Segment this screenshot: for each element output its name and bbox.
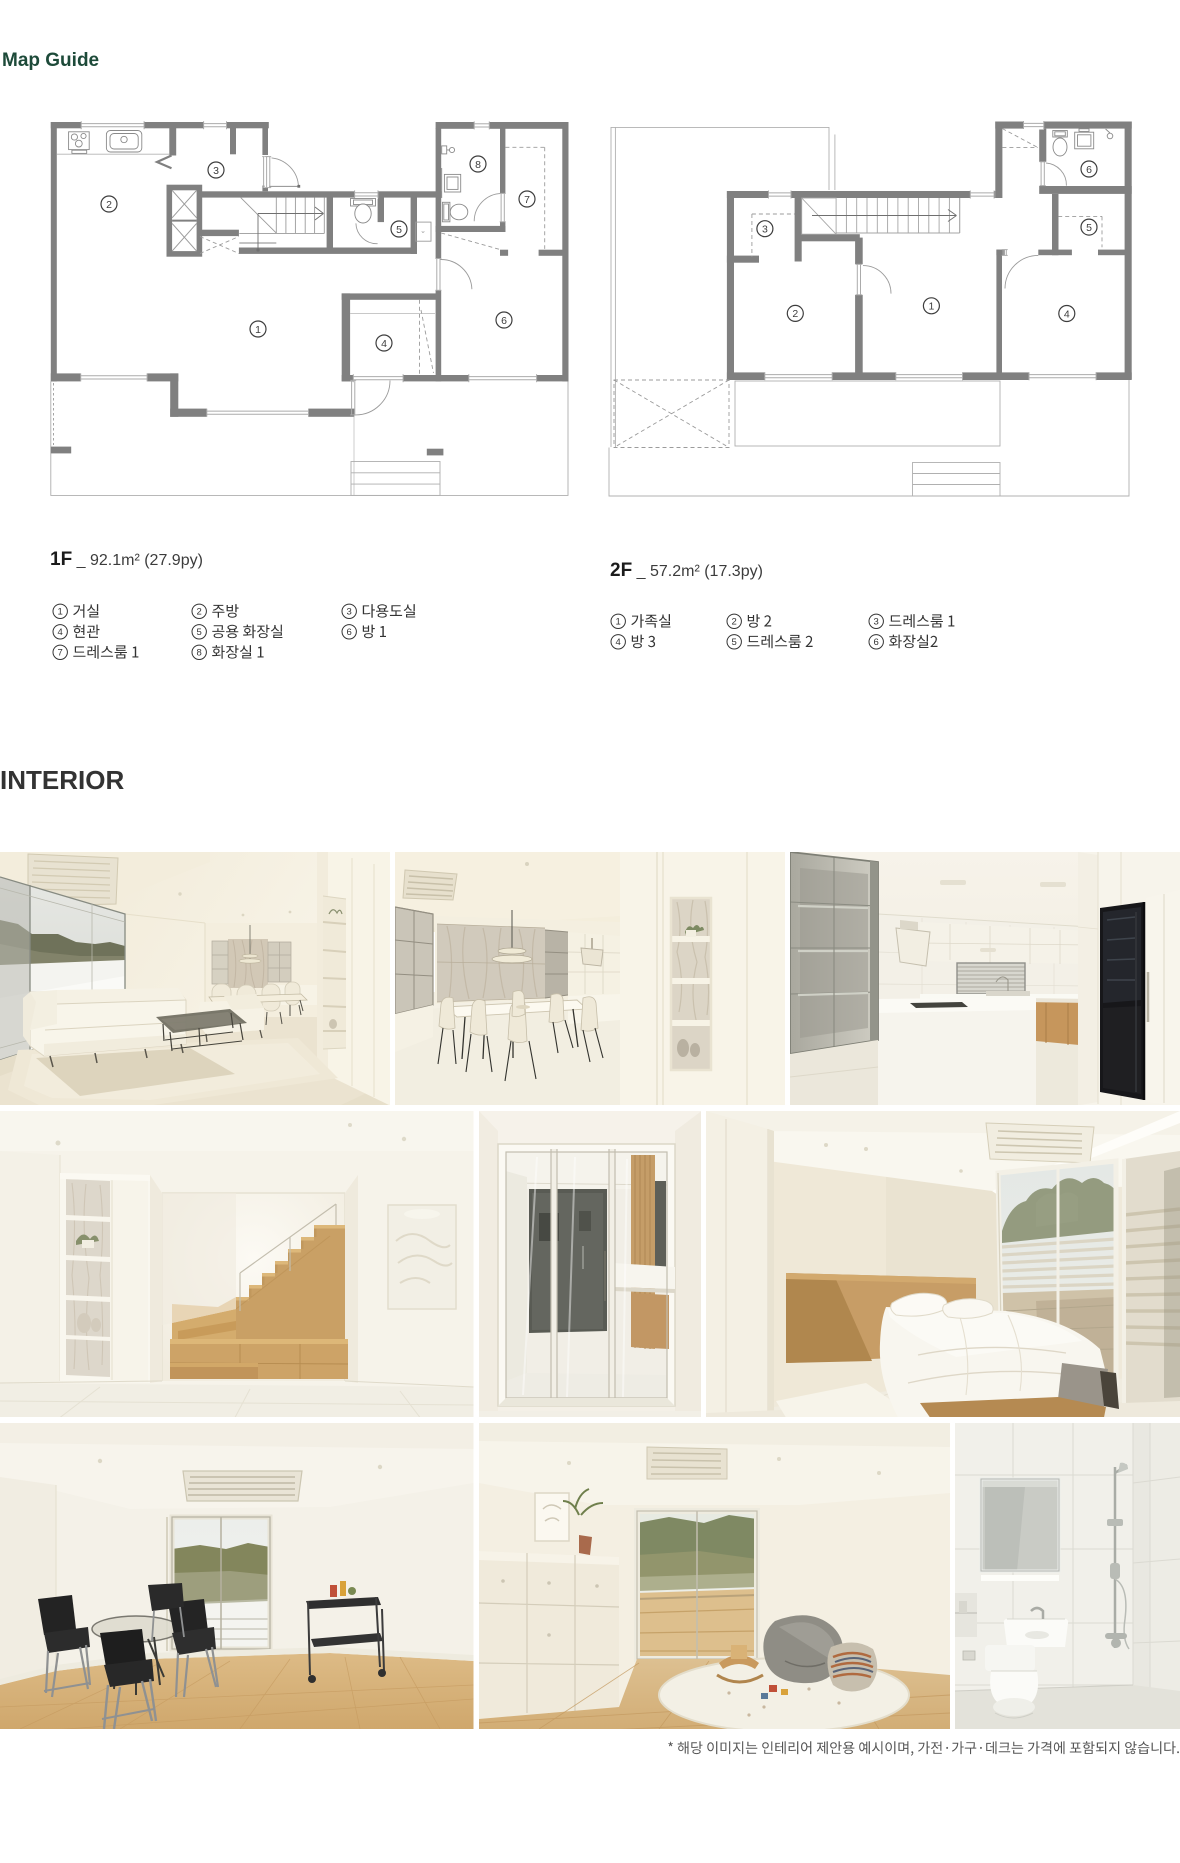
- svg-text:8: 8: [475, 159, 481, 171]
- svg-text:1: 1: [616, 617, 621, 628]
- svg-text:3: 3: [762, 224, 768, 236]
- svg-text:4: 4: [1064, 308, 1070, 320]
- svg-text:6: 6: [501, 315, 507, 327]
- svg-text:2: 2: [197, 607, 202, 618]
- svg-text:4: 4: [381, 338, 387, 350]
- svg-text:5: 5: [396, 224, 402, 236]
- svg-text:1: 1: [58, 607, 63, 618]
- svg-text:6: 6: [1086, 164, 1092, 176]
- svg-text:3: 3: [874, 617, 879, 628]
- svg-text:1: 1: [928, 301, 934, 313]
- svg-text:5: 5: [732, 637, 737, 648]
- svg-text:7: 7: [58, 648, 63, 659]
- svg-text:5: 5: [1086, 222, 1092, 234]
- svg-text:2: 2: [792, 308, 798, 320]
- svg-text:3: 3: [213, 165, 219, 177]
- svg-text:2: 2: [106, 199, 112, 211]
- svg-text:5: 5: [197, 627, 202, 638]
- svg-text:4: 4: [58, 627, 63, 638]
- svg-text:W: W: [422, 230, 425, 234]
- svg-text:7: 7: [524, 194, 530, 206]
- svg-text:1: 1: [255, 324, 261, 336]
- svg-text:6: 6: [347, 627, 352, 638]
- svg-text:3: 3: [347, 607, 352, 618]
- svg-text:2: 2: [732, 617, 737, 628]
- svg-text:4: 4: [616, 637, 621, 648]
- svg-text:8: 8: [197, 648, 202, 659]
- svg-text:6: 6: [874, 637, 879, 648]
